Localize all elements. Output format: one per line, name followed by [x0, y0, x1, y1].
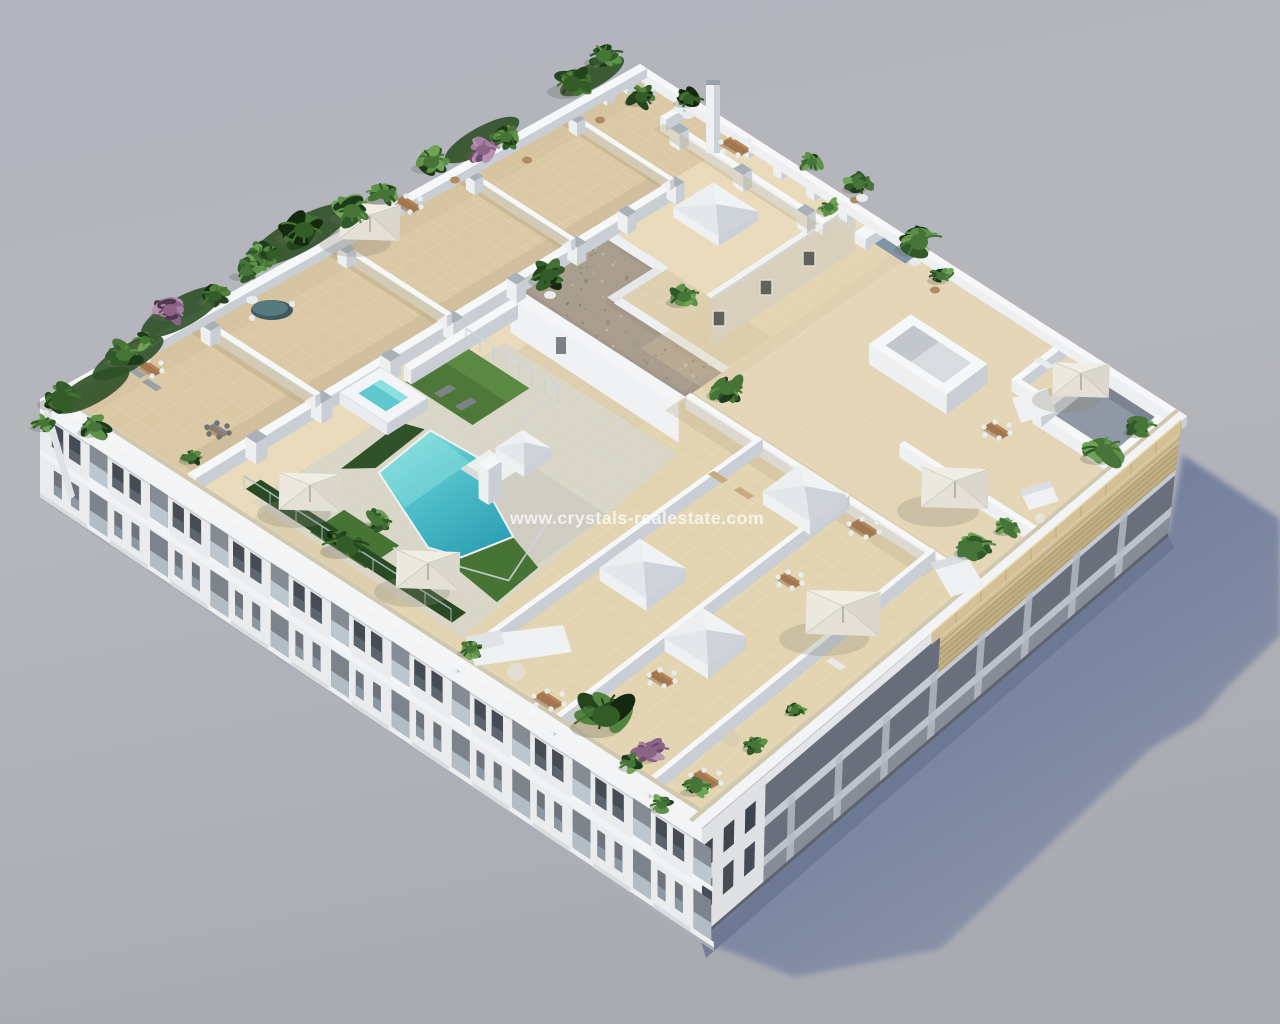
- svg-text:www.crystals-realestate.com: www.crystals-realestate.com: [509, 508, 764, 528]
